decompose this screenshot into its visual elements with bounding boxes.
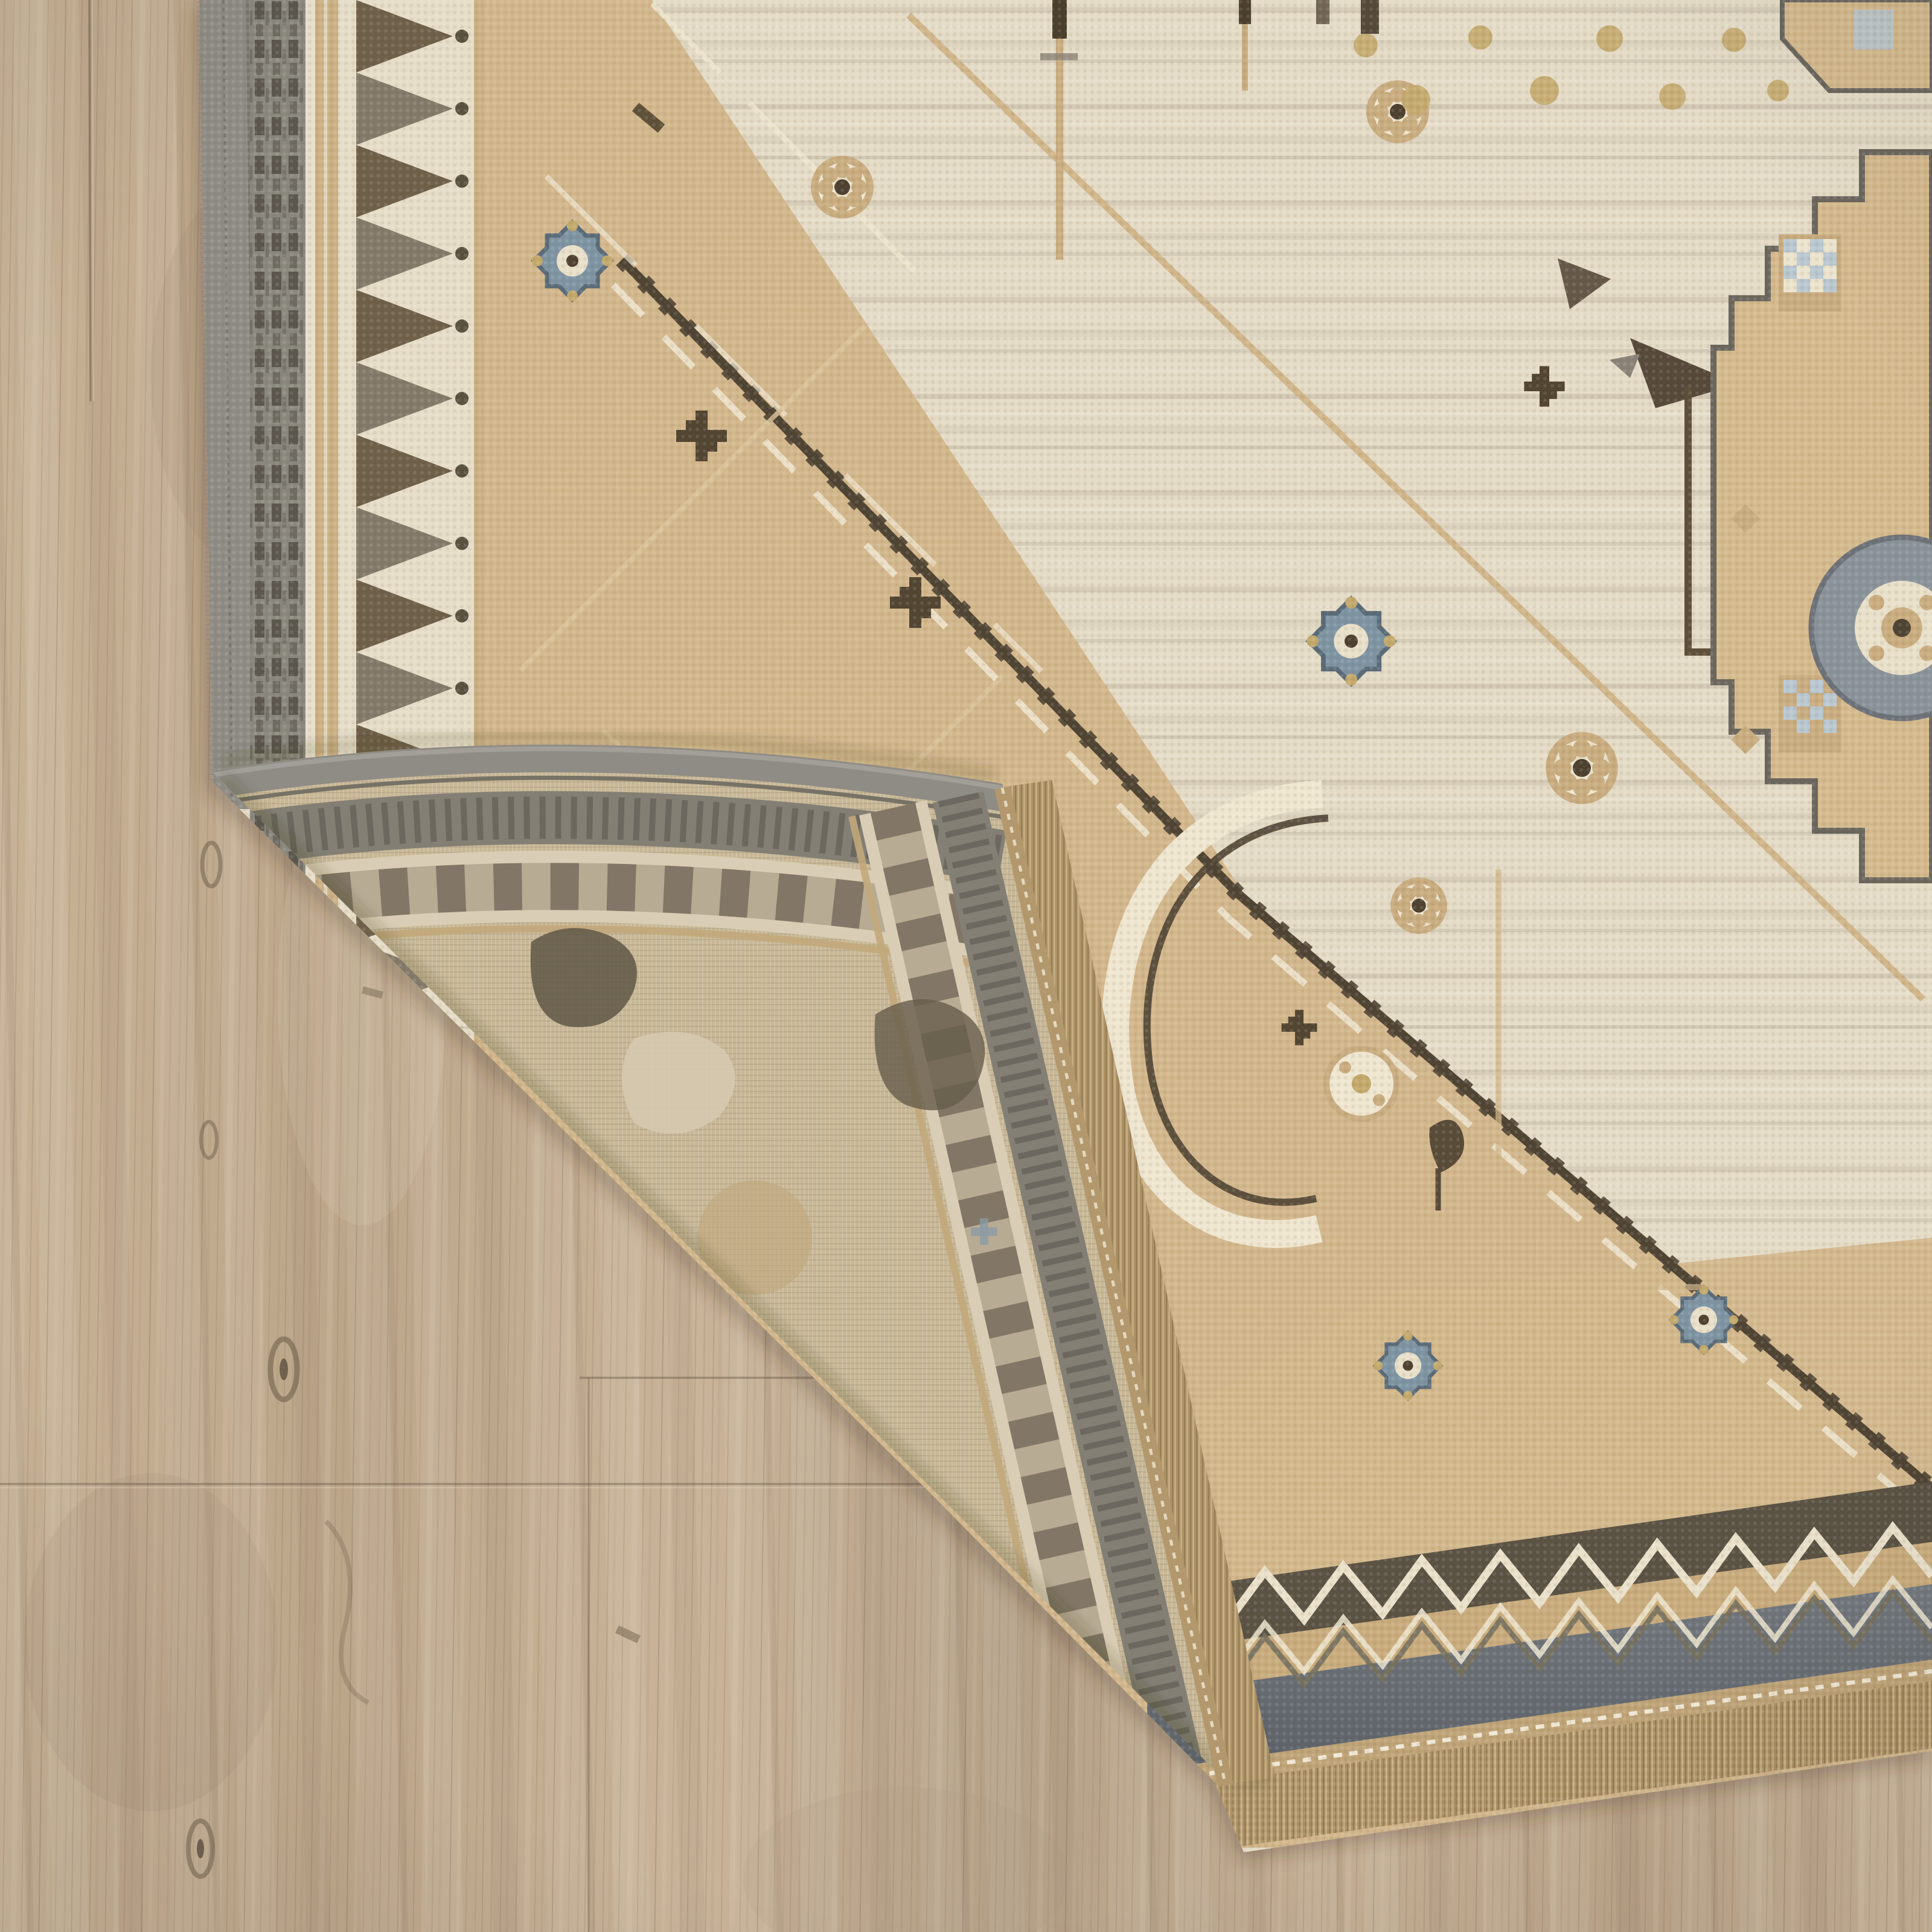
vignette — [0, 0, 1932, 1932]
rug-product-photo — [0, 0, 1932, 1932]
scene-photo — [0, 0, 1932, 1932]
